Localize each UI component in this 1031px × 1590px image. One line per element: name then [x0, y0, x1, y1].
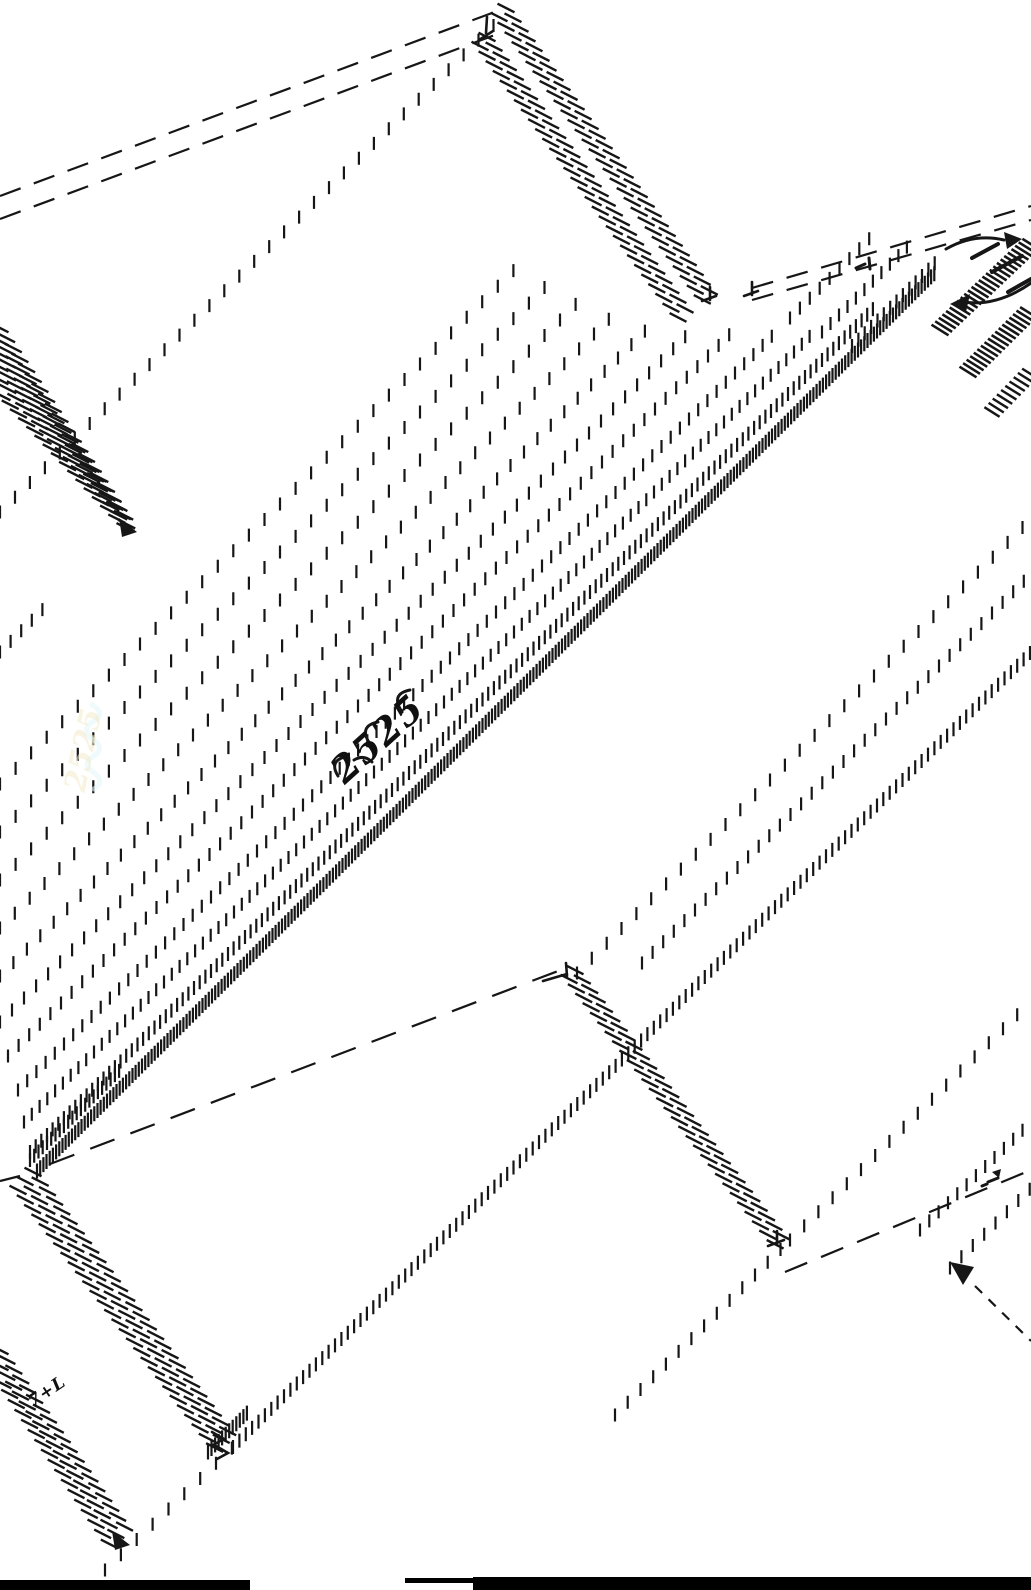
- bottom-left-bar: [0, 1580, 250, 1590]
- tickrow-right-1: [577, 521, 1023, 980]
- tickrow-central-4: [0, 330, 685, 1028]
- tickrow-br-3: [950, 1183, 1030, 1275]
- tickrow-wall-1: [790, 232, 869, 324]
- arrow-leader-dash: [975, 1286, 1031, 1341]
- screen-edge-bars: [0, 1577, 1031, 1590]
- ridge-end-mark-b: [744, 282, 758, 296]
- tickrow-left-frag: [0, 603, 42, 658]
- ridge-band-a2: [491, 13, 711, 304]
- v-right-band-1: [567, 966, 790, 1240]
- line-work: [0, 4, 1031, 1577]
- left-edge-band-6: [0, 392, 133, 532]
- low-left-band-1: [0, 1346, 133, 1531]
- tickrow-tip-cluster: [30, 1064, 119, 1167]
- bottom-right-bar: [473, 1577, 1031, 1590]
- low-left-arrowhead: [112, 1531, 130, 1550]
- tickrow-central-1: [0, 298, 576, 887]
- low-left-band-3: [0, 1380, 118, 1549]
- bottom-right-dash: [785, 1170, 1031, 1272]
- tr-hatch-3: [984, 369, 1031, 417]
- drawing-canvas: 25257+L2525: [0, 0, 1031, 1590]
- tickrow-right-2: [642, 575, 1024, 970]
- ridge-band-b2: [472, 42, 687, 322]
- tickrow-low-a: [105, 1442, 232, 1577]
- valley-dash: [50, 968, 566, 1164]
- ridge-band-a1: [498, 4, 718, 295]
- tip-band-2: [17, 1177, 230, 1443]
- v-right-band-2: [561, 975, 784, 1249]
- tickrow-central-5: [8, 328, 729, 1062]
- roof-top-dash-a: [0, 10, 500, 196]
- tip-band-3: [10, 1186, 224, 1452]
- tickrow-wall-3: [852, 256, 935, 353]
- tickrow-br-1: [790, 1008, 1017, 1246]
- roof-top-dash-b: [0, 32, 503, 219]
- ridge-band-b1: [479, 33, 694, 313]
- br-small-blob: [992, 1169, 1001, 1178]
- tr-hatch-2: [960, 307, 1031, 377]
- bottom-left-scribble: 7+L: [25, 1372, 70, 1412]
- left-edge-band-2: [0, 337, 127, 511]
- left-edge-band-3: [0, 350, 133, 520]
- tickrow-central-9: [37, 266, 934, 1178]
- tr-arrow-right-head: [1004, 232, 1022, 249]
- tickrow-topleft: [0, 19, 494, 519]
- bottom-strip: [405, 1578, 473, 1583]
- center-scribble: 2525: [321, 685, 434, 793]
- br-small-mark: [982, 1178, 998, 1186]
- tickrow-br-4: [615, 1243, 781, 1422]
- axonometric-line-drawing: 25257+L2525: [0, 0, 1031, 1590]
- br-arrowhead: [950, 1262, 974, 1285]
